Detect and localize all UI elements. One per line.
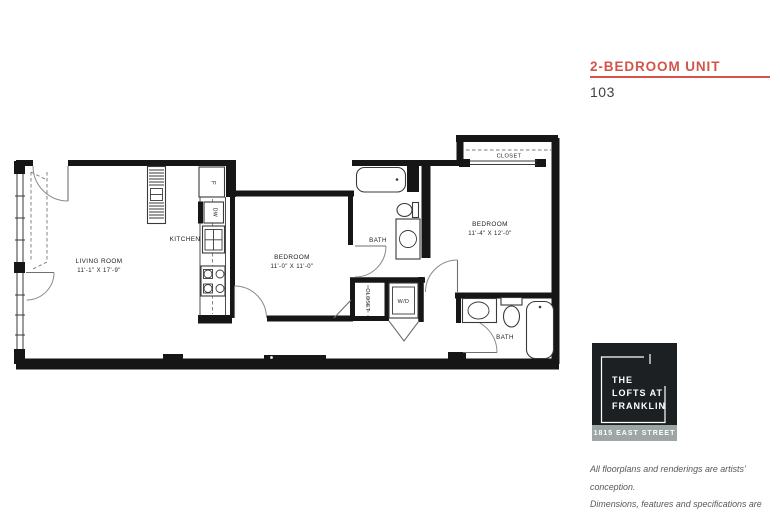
brand-logo: THE LOFTS AT FRANKLIN — [592, 343, 677, 425]
room-dims-living-room: 11'-1" X 17'-9" — [77, 268, 120, 274]
sink-vanity-1 — [396, 219, 420, 259]
page-title: 2-BEDROOM UNIT — [590, 59, 720, 74]
room-label-bath-1: BATH — [369, 237, 387, 244]
refrigerator-label: F — [210, 181, 216, 185]
toilet-2 — [501, 298, 522, 328]
disclaimer-line-1: All floorplans and renderings are artist… — [590, 461, 778, 496]
room-label-bedroom-1: BEDROOM — [274, 254, 310, 261]
room-dims-bedroom-2: 11'-4" X 12'-0" — [468, 231, 511, 237]
disclaimer-line-2: Dimensions, features and specifications … — [590, 496, 778, 517]
entry-dashed-outline — [31, 172, 47, 270]
room-label-closet-2: CLOSET — [497, 154, 522, 160]
room-label-living-room: LIVING ROOM — [75, 258, 122, 265]
address-bar: 1815 EAST STREET — [592, 425, 677, 441]
disclaimer-text: All floorplans and renderings are artist… — [590, 461, 778, 517]
page: LIVING ROOM 11'-1" X 17'-9" KITCHEN BEDR… — [0, 0, 780, 517]
room-label-bedroom-2: BEDROOM — [472, 221, 508, 228]
kitchen-sink — [203, 226, 225, 253]
room-label-bath-2: BATH — [496, 334, 514, 341]
logo-line-1: THE — [612, 374, 666, 387]
range — [201, 266, 225, 296]
unit-number: 103 — [590, 84, 615, 100]
bathtub-1 — [357, 168, 406, 193]
title-underline — [590, 76, 770, 78]
room-dims-bedroom-1: 11'-0" X 11'-0" — [270, 264, 313, 270]
pantry-cabinet — [148, 167, 166, 224]
room-label-laundry: W/D — [398, 299, 410, 305]
walls — [14, 135, 559, 365]
room-label-kitchen: KITCHEN — [170, 236, 201, 243]
logo-line-2: LOFTS AT — [612, 387, 666, 400]
sink-vanity-2 — [463, 299, 497, 323]
dishwasher — [198, 202, 224, 224]
bathtub-2 — [527, 302, 554, 359]
toilet-1 — [397, 203, 419, 218]
room-labels: LIVING ROOM 11'-1" X 17'-9" KITCHEN BEDR… — [75, 154, 521, 342]
window-wall — [15, 174, 25, 349]
bath-2-fixtures — [463, 298, 554, 359]
dishwasher-label: DW — [212, 208, 218, 217]
logo-wordmark: THE LOFTS AT FRANKLIN — [612, 374, 666, 413]
logo-line-3: FRANKLIN — [612, 400, 666, 413]
room-label-closet-1: CLOSET — [364, 288, 370, 312]
